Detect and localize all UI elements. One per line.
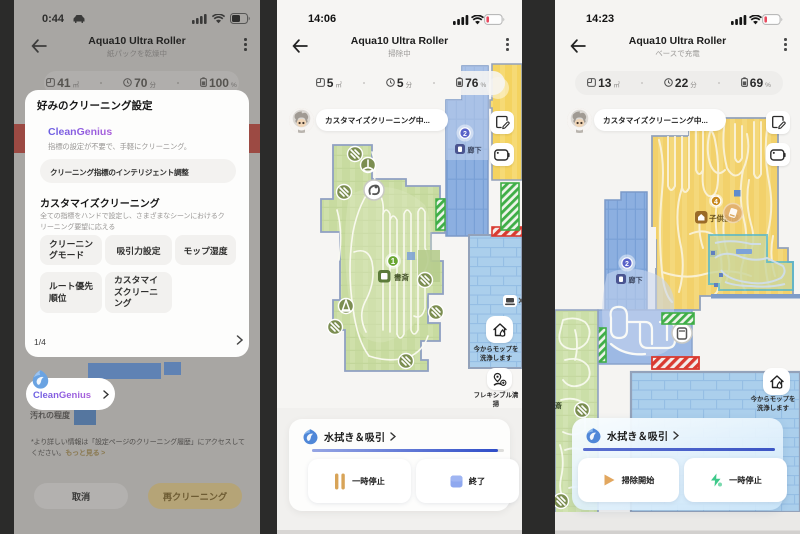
svg-text:廊下: 廊下 [629,276,643,285]
svg-text:4: 4 [714,199,718,206]
svg-text:1: 1 [391,257,396,266]
svg-text:書斎: 書斎 [394,272,409,282]
svg-text:斎: 斎 [555,401,562,410]
svg-text:2: 2 [463,131,467,138]
svg-text:2: 2 [625,261,629,268]
svg-text:廊下: 廊下 [468,146,482,155]
